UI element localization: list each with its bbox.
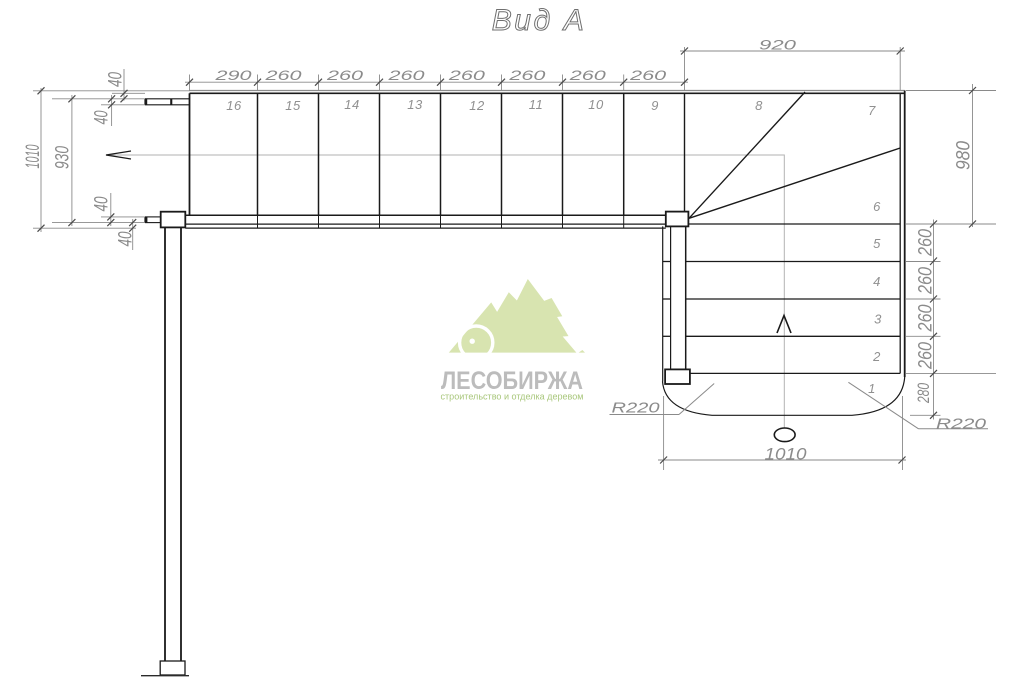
svg-text:260: 260 (325, 67, 363, 83)
svg-text:6: 6 (873, 199, 881, 214)
svg-text:980: 980 (953, 141, 975, 170)
svg-text:R220: R220 (612, 400, 661, 417)
svg-text:260: 260 (915, 342, 937, 370)
svg-text:280: 280 (914, 383, 933, 404)
svg-text:Вид А: Вид А (492, 4, 587, 37)
svg-text:9: 9 (651, 98, 659, 113)
svg-text:260: 260 (915, 304, 937, 332)
svg-text:12: 12 (469, 98, 485, 113)
svg-text:5: 5 (873, 236, 881, 251)
svg-text:40: 40 (105, 72, 127, 87)
svg-text:40: 40 (91, 110, 113, 124)
svg-text:R220: R220 (936, 416, 987, 433)
svg-text:290: 290 (214, 67, 252, 83)
svg-text:15: 15 (285, 98, 301, 113)
svg-text:260: 260 (264, 67, 302, 83)
svg-text:11: 11 (529, 97, 544, 112)
svg-text:260: 260 (447, 67, 485, 83)
svg-text:1010: 1010 (22, 144, 44, 168)
svg-text:260: 260 (915, 267, 937, 295)
svg-text:1: 1 (868, 381, 876, 396)
svg-text:13: 13 (407, 97, 423, 112)
svg-text:1010: 1010 (765, 445, 808, 464)
svg-text:260: 260 (629, 67, 667, 83)
svg-text:14: 14 (344, 97, 359, 112)
svg-text:40: 40 (115, 231, 137, 246)
svg-text:2: 2 (872, 349, 881, 364)
svg-text:3: 3 (874, 312, 882, 327)
svg-text:строительство и отделка дерево: строительство и отделка деревом (441, 392, 584, 402)
svg-text:16: 16 (226, 98, 242, 113)
svg-text:260: 260 (508, 67, 546, 83)
svg-text:260: 260 (915, 229, 937, 257)
svg-text:4: 4 (873, 274, 881, 289)
svg-text:40: 40 (91, 196, 113, 211)
svg-text:930: 930 (52, 146, 74, 169)
svg-text:920: 920 (759, 37, 796, 53)
svg-text:10: 10 (588, 97, 604, 112)
svg-text:260: 260 (387, 67, 425, 83)
svg-text:8: 8 (755, 98, 763, 113)
svg-text:7: 7 (868, 103, 876, 118)
svg-text:260: 260 (568, 67, 606, 83)
